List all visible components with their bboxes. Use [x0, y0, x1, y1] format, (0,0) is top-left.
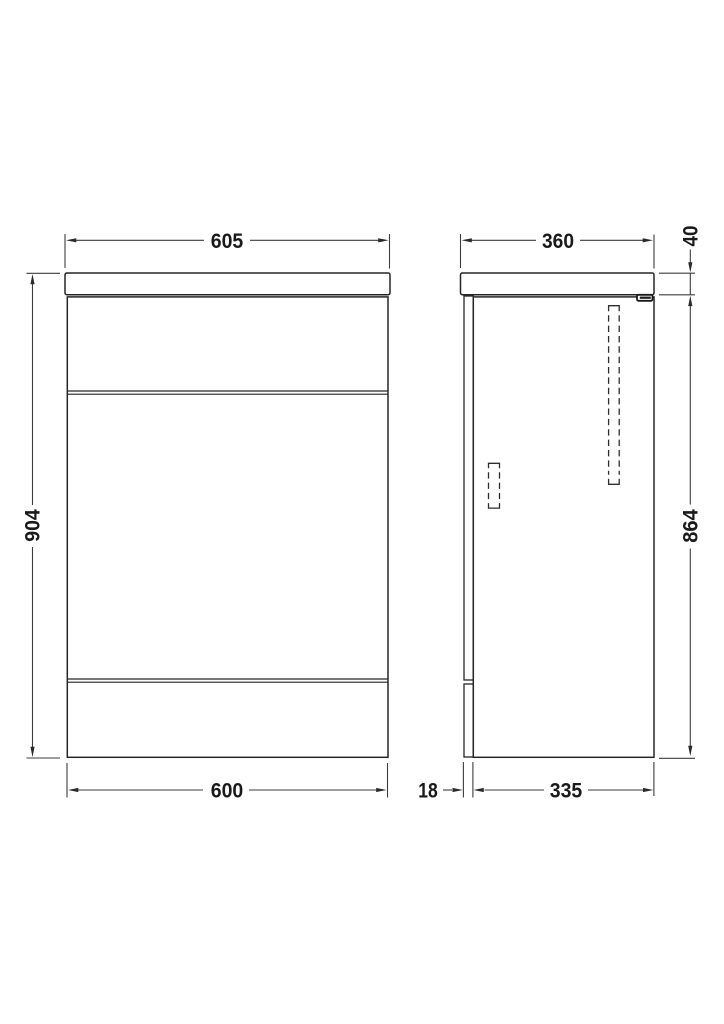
svg-text:904: 904 — [22, 509, 45, 542]
svg-text:360: 360 — [542, 230, 574, 253]
svg-text:605: 605 — [211, 230, 244, 253]
svg-text:18: 18 — [418, 780, 438, 803]
svg-text:864: 864 — [680, 509, 703, 543]
svg-text:600: 600 — [211, 780, 244, 803]
svg-text:40: 40 — [680, 226, 703, 247]
svg-text:335: 335 — [550, 780, 583, 803]
